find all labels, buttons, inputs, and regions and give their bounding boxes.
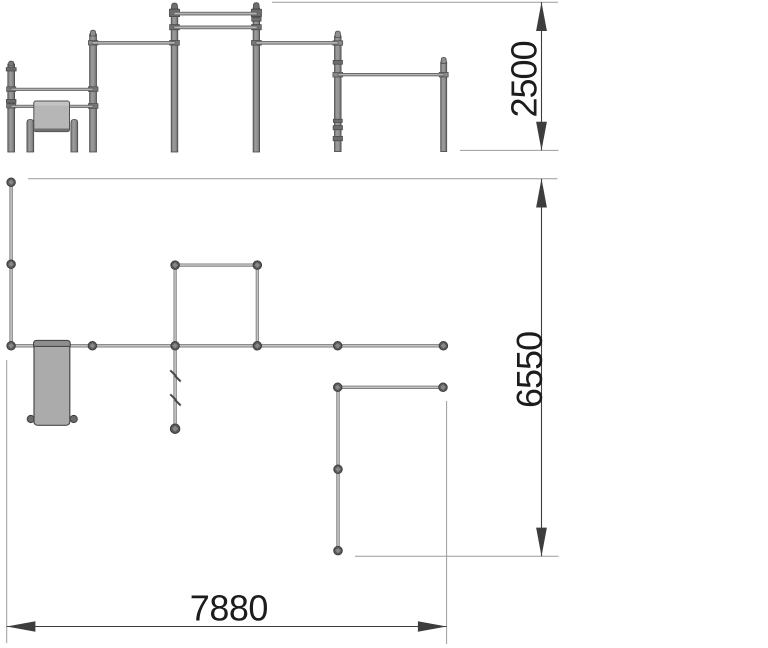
svg-text:2500: 2500	[504, 41, 545, 117]
svg-text:7880: 7880	[190, 588, 268, 629]
svg-text:6550: 6550	[509, 332, 550, 408]
